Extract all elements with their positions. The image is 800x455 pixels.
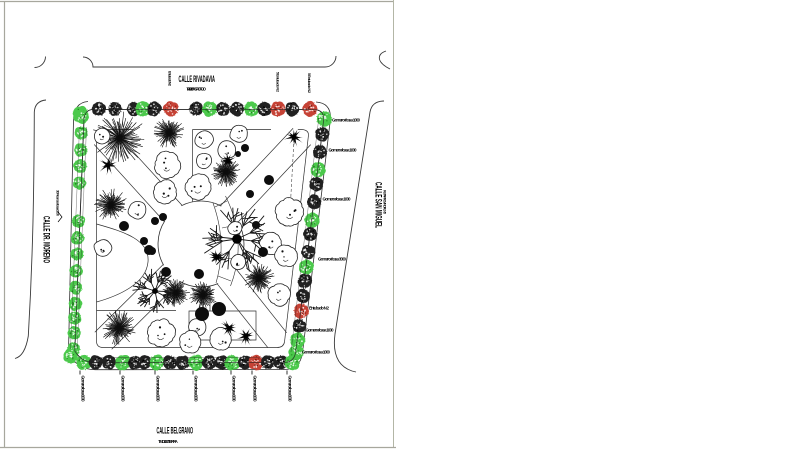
svg-text:Gomero r/casa 1000: Gomero r/casa 1000	[329, 148, 358, 153]
svg-text:30 Fresnos r/casa 1000: 30 Fresnos r/casa 1000	[56, 190, 60, 216]
svg-text:Gomero r/casa 1000: Gomero r/casa 1000	[194, 376, 199, 403]
svg-text:Gomero r/casa 1000: Gomero r/casa 1000	[323, 197, 352, 202]
svg-text:CALLE RIVADAVIA: CALLE RIVADAVIA	[179, 74, 216, 84]
svg-text:Gomero r/casa 1000: Gomero r/casa 1000	[253, 376, 258, 403]
svg-text:Entubado N 2: Entubado N 2	[309, 306, 330, 311]
svg-text:5 Entubado N 2: 5 Entubado N 2	[276, 72, 280, 92]
svg-text:Entubado N 2: Entubado N 2	[168, 71, 172, 86]
svg-text:Gomero r/casa 1000: Gomero r/casa 1000	[302, 350, 331, 355]
svg-text:CALLE SAN MIGUEL: CALLE SAN MIGUEL	[374, 182, 384, 228]
svg-text:Gomero r/casa 1000: Gomero r/casa 1000	[232, 376, 237, 403]
svg-text:T.M.D. 832 TIERRA: T.M.D. 832 TIERRA	[158, 439, 178, 444]
svg-text:Gomero r/casa 1000: Gomero r/casa 1000	[288, 376, 293, 403]
svg-text:5 Entubado N 2: 5 Entubado N 2	[307, 73, 311, 93]
svg-text:Gomero r/casa 1000: Gomero r/casa 1000	[306, 328, 335, 333]
svg-text:T.M.D. 2.387 ASFALTADO: T.M.D. 2.387 ASFALTADO	[187, 87, 207, 92]
svg-text:Gomero r/casa 1000: Gomero r/casa 1000	[332, 118, 361, 123]
svg-text:Gomero r/casa 1000: Gomero r/casa 1000	[81, 376, 86, 403]
svg-text:RUTA PROVINCIAL N 5: RUTA PROVINCIAL N 5	[383, 190, 387, 214]
svg-text:Gomero r/casa 3000: Gomero r/casa 3000	[318, 257, 347, 262]
svg-text:CALLE DR. MORENO: CALLE DR. MORENO	[42, 216, 52, 263]
svg-text:Gomero r/casa 1000: Gomero r/casa 1000	[121, 376, 126, 403]
svg-text:Gomero r/casa 1000: Gomero r/casa 1000	[156, 376, 161, 403]
svg-text:CALLE BELGRANO: CALLE BELGRANO	[157, 426, 194, 436]
